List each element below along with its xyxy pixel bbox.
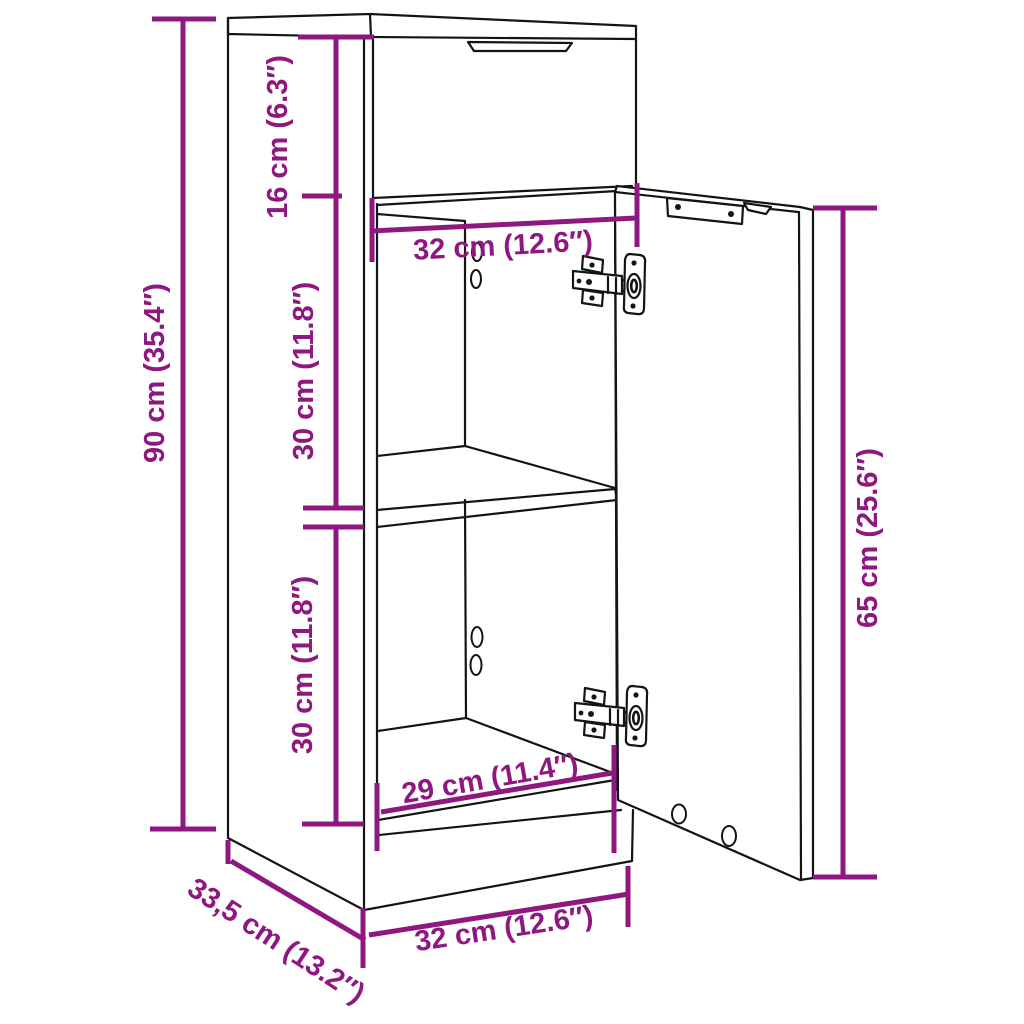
upper-compartment-label: 30 cm (11.8″) — [288, 282, 320, 460]
bracket-screw — [675, 204, 681, 210]
shelf-pin-hole — [471, 655, 482, 675]
bottom-hinge — [575, 686, 647, 746]
door-hole — [722, 826, 736, 846]
dimension-upper-compartment: 30 cm (11.8″) — [288, 196, 364, 508]
top-hinge — [573, 254, 645, 314]
dimension-diagram: 90 cm (35.4″) 16 cm (6.3″) 32 cm (12.6″)… — [0, 0, 1024, 1024]
door-height-label: 65 cm (25.6″) — [852, 448, 884, 628]
dimension-lower-compartment: 30 cm (11.8″) — [287, 527, 364, 824]
cabinet-line-drawing: 90 cm (35.4″) 16 cm (6.3″) 32 cm (12.6″)… — [0, 0, 1024, 1024]
drawer-height-label: 16 cm (6.3″) — [262, 55, 294, 219]
shelf — [377, 446, 617, 527]
dimension-depth: 33,5 cm (13.2″) — [182, 840, 371, 1010]
inner-width-top-label: 32 cm (12.6″) — [412, 225, 593, 266]
dimension-door-height: 65 cm (25.6″) — [813, 208, 884, 877]
bracket-screw — [728, 211, 734, 217]
interior-back-corner — [465, 221, 466, 718]
shelf-pin-hole — [471, 270, 481, 288]
dimension-overall-width: 32 cm (12.6″) — [363, 866, 629, 968]
depth-label: 33,5 cm (13.2″) — [182, 872, 371, 1010]
drawer-handle-recess — [468, 42, 572, 51]
overall-height-label: 90 cm (35.4″) — [139, 283, 171, 463]
lower-compartment-label: 30 cm (11.8″) — [287, 576, 319, 754]
top-panel — [228, 14, 636, 39]
drawer-bottom-rail — [373, 186, 632, 221]
overall-width-label: 32 cm (12.6″) — [413, 900, 596, 958]
dimension-overall-height: 90 cm (35.4″) — [139, 19, 216, 829]
shelf-pin-hole — [472, 627, 483, 647]
dimension-drawer-height: 16 cm (6.3″) — [262, 37, 374, 219]
door-hole — [672, 805, 686, 824]
